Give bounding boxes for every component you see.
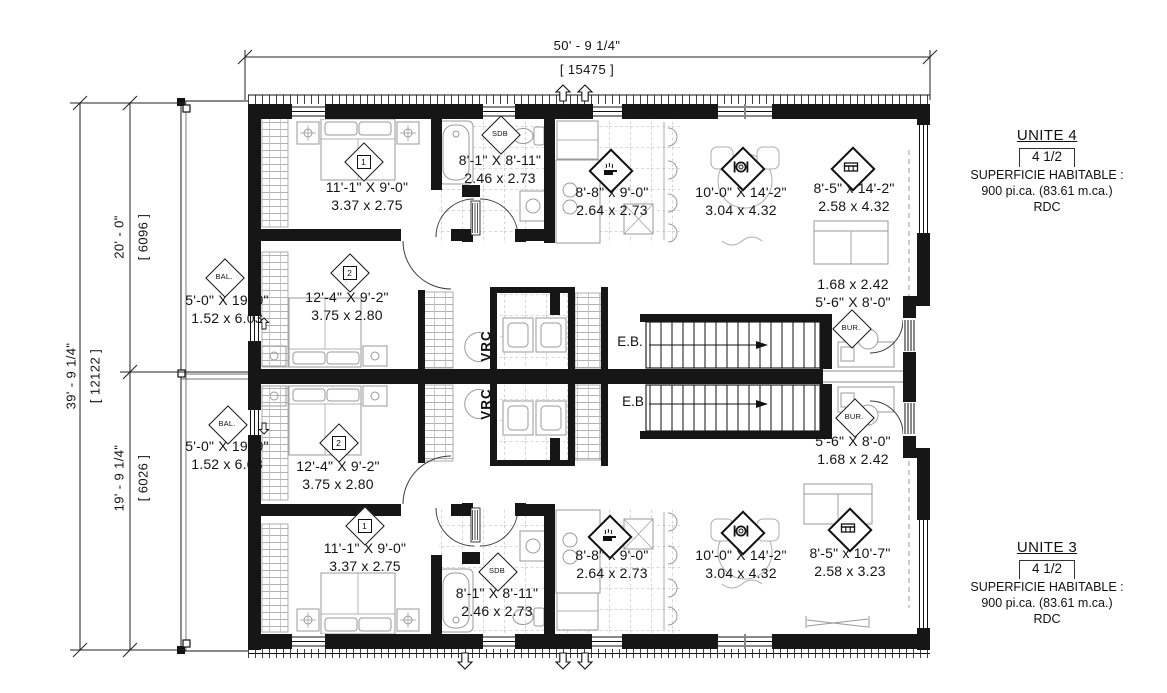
dim-unit4-ft: 20' - 0" [112,215,127,259]
bureau-u4-line1: 1.68 x 2.42 [815,275,890,293]
room-number: 1 [358,519,372,533]
dim-unit4-mm: [ 6096 ] [136,214,151,261]
dim-width-mm: [ 15475 ] [560,62,614,77]
vrc-u3-label: VRC [479,388,494,420]
bureau-u3-label: 5'-6" X 8'-0" 1.68 x 2.42 [815,432,890,468]
bedroom1-u4-imperial: 11'-1" X 9'-0" [326,178,408,196]
bedroom1-u4-label: 11'-1" X 9'-0" 3.37 x 2.75 [326,178,408,214]
floor-plan: 50' - 9 1/4" [ 15475 ] 39' - 9 1/4" [ 12… [0,0,1167,693]
balcony-rail [177,98,248,654]
dim-unit3-ft: 19' - 9 1/4" [112,445,127,512]
bedroom2-u4-metric: 3.75 x 2.80 [305,306,388,324]
bureau-u4-label: 1.68 x 2.42 5'-6" X 8'-0" [815,275,890,311]
living-u4-metric: 2.58 x 4.32 [813,197,894,215]
kitchen-u4-metric: 2.64 x 2.73 [575,201,648,219]
dining-u4-metric: 3.04 x 4.32 [695,201,786,219]
unit3-layout: 4 1/2 [1019,560,1075,579]
sdb-u4-metric: 2.46 x 2.73 [459,169,541,187]
bureau-tag: BUR. [831,323,871,332]
dining-icon [732,522,750,540]
unit4-layout: 4 1/2 [1019,148,1075,167]
living-u3-metric: 2.58 x 3.23 [809,562,890,580]
balcony-u3-metric: 1.52 x 6.03 [185,455,268,473]
unit4-area: 900 pi.ca. (83.61 m.ca.) [937,184,1157,200]
kitchen-u3-metric: 2.64 x 2.73 [575,564,648,582]
unit4-title-block: UNITE 4 4 1/2 SUPERFICIE HABITABLE : 900… [937,127,1157,215]
bedroom2-u4-label: 12'-4" X 9'-2" 3.75 x 2.80 [305,288,388,324]
sdb-u4-label: 8'-1" X 8'-11" 2.46 x 2.73 [459,151,541,187]
unit3-area: 900 pi.ca. (83.61 m.ca.) [937,596,1157,612]
unit3-title: UNITE 3 [937,539,1157,556]
unit3-area-label: SUPERFICIE HABITABLE : [937,580,1157,596]
dim-unit3-mm: [ 6026 ] [136,455,151,502]
unit3-title-block: UNITE 3 4 1/2 SUPERFICIE HABITABLE : 900… [937,539,1157,627]
dim-height-ft: 39' - 9 1/4" [64,343,79,410]
bureau-tag: BUR. [834,412,874,421]
eb-u4-label: E.B. [617,334,643,349]
dining-u3-metric: 3.04 x 4.32 [695,564,786,582]
eb-u3-label: E.B [622,394,644,409]
room-number: 2 [343,266,357,280]
bedroom1-u3-metric: 3.37 x 2.75 [324,557,406,575]
unit4-area-label: SUPERFICIE HABITABLE : [937,168,1157,184]
balcony-u4-label: 5'-0" X 19'-9" 1.52 x 6.03 [185,291,268,327]
balcony-tag: BAL. [204,272,244,281]
bedroom2-u3-metric: 3.75 x 2.80 [296,475,379,493]
unit3-level: RDC [937,612,1157,628]
unit4-title: UNITE 4 [937,127,1157,144]
room-number: 2 [332,436,346,450]
dim-width-ft: 50' - 9 1/4" [554,38,621,53]
room-number: 1 [357,155,371,169]
dim-height-mm: [ 12122 ] [88,349,103,403]
vrc-u4-label: VRC [479,330,494,362]
unit4-level: RDC [937,200,1157,216]
bureau-u4-line2: 5'-6" X 8'-0" [815,293,890,311]
balcony-tag: BAL. [207,419,247,428]
balcony-u4-metric: 1.52 x 6.03 [185,309,268,327]
stove-icon [599,526,617,544]
sofa-icon [839,519,857,537]
sdb-tag: SDB [480,129,520,138]
sdb-tag: SDB [477,566,517,575]
bedroom1-u4-metric: 3.37 x 2.75 [326,196,408,214]
sofa-icon [842,158,860,176]
bureau-u3-line2: 1.68 x 2.42 [815,450,890,468]
sdb-u3-metric: 2.46 x 2.73 [456,602,538,620]
dining-icon [732,158,750,176]
stove-icon [600,160,618,178]
